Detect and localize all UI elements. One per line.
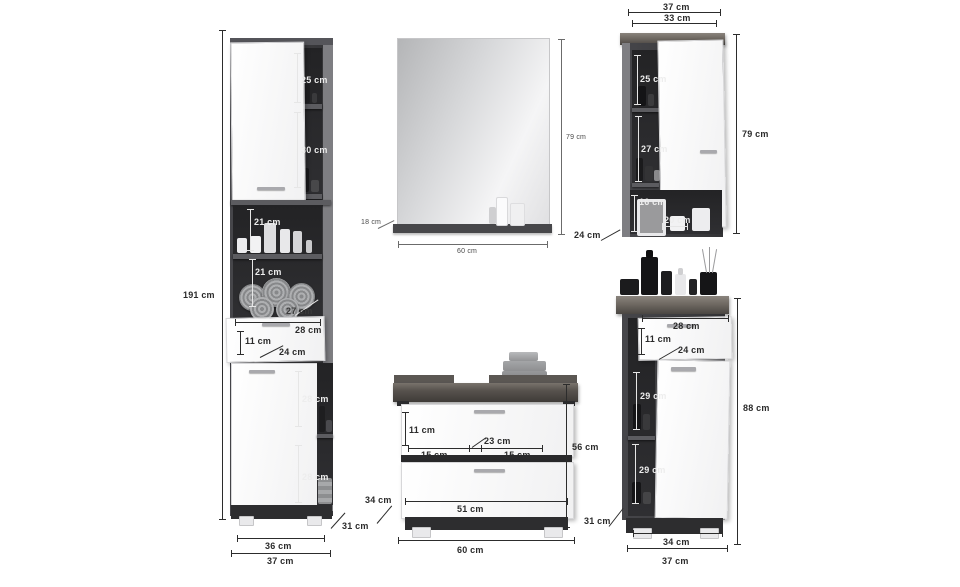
tall-foot-right	[307, 516, 322, 526]
mirror-glass	[397, 38, 550, 227]
diffuser-stick	[709, 247, 710, 273]
dim-line-wall-niche-top	[637, 55, 638, 105]
washbasin-upper-drawer-handle	[474, 410, 505, 413]
small-bottle-item	[306, 240, 312, 253]
dim-floor-width: 37 cm	[662, 557, 689, 566]
box-item	[692, 208, 710, 231]
dim-line-tall-niche-sixth	[298, 445, 299, 503]
dim-line-floor-niche-lower	[635, 444, 636, 504]
washbasin-lower-drawer-handle	[474, 469, 505, 472]
dim-tall-drawer-width: 28 cm	[295, 326, 322, 335]
bottle-item	[489, 207, 496, 224]
bottle-item	[645, 166, 653, 181]
diffuser-stick	[712, 249, 717, 273]
tall-foot-left	[239, 516, 254, 526]
dim-tall-niche-sixth: 28 cm	[302, 473, 329, 482]
dim-line-floor-inner-width	[633, 533, 723, 534]
dim-washbasin-depth: 34 cm	[365, 496, 392, 505]
dim-line-floor-drawer-height	[641, 328, 642, 355]
dim-tall-width: 37 cm	[267, 557, 294, 566]
washbasin-foot-right	[544, 527, 563, 538]
candle-item	[237, 238, 247, 253]
washbasin-top-slab	[393, 383, 578, 402]
bottle-item	[496, 197, 508, 226]
jar-item	[620, 279, 639, 295]
dim-line-tall-height	[222, 30, 223, 520]
bottle-item	[510, 203, 525, 226]
dim-tall-drawer-height: 11 cm	[245, 337, 271, 346]
dim-mirror-height: 79 cm	[566, 134, 586, 141]
spray-bottle-item	[675, 274, 686, 295]
dim-floor-inner-width: 34 cm	[663, 538, 690, 547]
dim-line-washbasin-width	[398, 540, 575, 541]
dim-line-floor-width	[627, 548, 728, 549]
dim-line-tall-inner-width	[237, 538, 325, 539]
bottle-item	[633, 404, 641, 430]
dim-wall-height: 79 cm	[742, 130, 769, 139]
dim-line-floor-niche-upper	[636, 372, 637, 430]
dim-line-tall-drawer-height	[240, 331, 241, 355]
dim-tall-niche-fourth: 21 cm	[255, 268, 282, 277]
pump-bottle-item	[641, 257, 658, 295]
mirror-shelf	[393, 224, 552, 233]
dim-washbasin-cutout-width: 23 cm	[484, 437, 511, 446]
dim-tick	[469, 445, 470, 452]
tall-shelf-board-4	[317, 434, 333, 438]
folded-towel-item	[509, 352, 538, 361]
dim-floor-drawer-depth: 24 cm	[678, 346, 705, 355]
pump-head-item	[646, 250, 653, 258]
bottle-item	[648, 94, 654, 106]
tall-upper-door-handle	[257, 187, 285, 190]
dim-line-washbasin-lower-width	[405, 501, 568, 502]
dim-line-tall-width	[231, 553, 331, 554]
dim-tall-niche-third: 21 cm	[254, 218, 281, 227]
small-bottle-item	[689, 279, 697, 295]
dim-tall-drawer-depth: 24 cm	[279, 348, 306, 357]
dim-line-wall-height	[736, 34, 737, 234]
furniture-dimension-diagram: 191 cm 25 cm 30 cm 21 cm 21 cm 27 cm 28 …	[0, 0, 960, 587]
dim-wall-niche-middle: 27 cm	[641, 145, 668, 154]
floor-cabinet-door-handle	[671, 367, 696, 371]
tube-item	[293, 231, 302, 253]
dim-line-washbasin-depth	[377, 506, 393, 524]
dim-line-washbasin-split-widths	[408, 448, 543, 449]
dim-washbasin-right-width: 15 cm	[504, 451, 531, 460]
dim-line-wall-depth	[601, 229, 621, 241]
dim-line-tall-niche-top	[297, 53, 298, 103]
dim-tall-niche-second: 30 cm	[301, 146, 328, 155]
dim-wall-niche-bottom-width: 20 cm	[664, 216, 691, 225]
dim-mirror-width: 60 cm	[457, 248, 477, 255]
dim-line-tall-niche-fourth	[252, 259, 253, 307]
dim-line-floor-height	[737, 298, 738, 545]
floor-shelf-board	[628, 436, 655, 440]
dim-line-wall-inner-width	[632, 23, 717, 24]
dim-floor-depth: 31 cm	[584, 517, 611, 526]
dim-tall-inner-width: 36 cm	[265, 542, 292, 551]
dim-tall-niche-fifth: 28 cm	[302, 395, 329, 404]
dim-line-mirror-width	[398, 244, 548, 245]
washbasin-foot-left	[412, 527, 431, 538]
floor-cabinet-door	[655, 359, 731, 519]
dim-line-mirror-height	[561, 39, 562, 235]
dim-line-washbasin-drawer-height	[405, 412, 406, 446]
dim-line-tall-niche-third	[250, 209, 251, 251]
dim-line-wall-niche-bottom-height	[634, 195, 635, 232]
wall-shelf-board-2	[632, 183, 659, 187]
dim-tall-depth: 31 cm	[342, 522, 369, 531]
dim-wall-niche-bottom-height: 16 cm	[639, 198, 666, 207]
dim-line-washbasin-height	[566, 384, 567, 528]
dim-line-tall-drawer-width	[235, 322, 321, 323]
jar-item	[326, 420, 332, 432]
tall-drawer-handle	[262, 323, 290, 326]
bottle-item	[312, 93, 317, 103]
dim-floor-niche-upper: 29 cm	[640, 392, 667, 401]
dim-wall-inner-width: 33 cm	[664, 14, 691, 23]
dim-wall-width: 37 cm	[663, 3, 690, 12]
dim-line-floor-drawer-width	[642, 318, 729, 319]
jar-item	[643, 492, 651, 504]
diffuser-item	[700, 272, 717, 295]
dim-line-wall-niche-middle	[638, 116, 639, 182]
dim-floor-niche-lower: 29 cm	[639, 466, 666, 475]
wall-cabinet-door-handle	[700, 150, 717, 153]
tall-lower-door	[231, 363, 319, 513]
dim-tick	[481, 445, 482, 452]
dim-tall-height: 191 cm	[183, 291, 215, 300]
dim-floor-height: 88 cm	[743, 404, 770, 413]
dim-washbasin-lower-width: 51 cm	[457, 505, 484, 514]
dim-washbasin-drawer-height: 11 cm	[409, 426, 435, 435]
jar-item	[311, 180, 319, 192]
dim-line-tall-niche-second	[297, 112, 298, 188]
wall-cabinet-side-panel	[622, 43, 630, 237]
dim-line-tall-niche-fifth	[298, 371, 299, 427]
dim-tall-niche-depth: 27 cm	[286, 307, 313, 316]
tall-shelf-board-3	[233, 254, 322, 259]
bottle-item	[661, 271, 672, 295]
pump-bottle-item	[264, 223, 276, 253]
spray-nozzle-item	[678, 268, 683, 275]
dim-floor-drawer-width: 28 cm	[673, 322, 700, 331]
dim-line-wall-niche-bottom-width	[662, 226, 688, 227]
dim-wall-depth: 24 cm	[574, 231, 601, 240]
dim-tall-niche-top: 25 cm	[301, 76, 328, 85]
dim-floor-drawer-height: 11 cm	[645, 335, 671, 344]
tall-upper-door	[230, 42, 306, 205]
floor-cabinet-top	[616, 296, 729, 314]
bottle-item	[632, 482, 641, 504]
dim-mirror-shelf-depth: 18 cm	[361, 219, 381, 226]
diffuser-stick	[702, 249, 707, 273]
bottle-item	[319, 406, 325, 432]
lotion-bottle-item	[280, 229, 290, 253]
bottle-item	[638, 86, 646, 106]
dim-washbasin-left-width: 15 cm	[421, 451, 448, 460]
folded-towel-item	[503, 361, 546, 371]
wall-shelf-board-1	[632, 108, 659, 112]
tall-lower-door-handle	[249, 370, 275, 373]
dim-washbasin-height: 56 cm	[572, 443, 599, 452]
bottle-item	[643, 414, 650, 430]
dim-wall-niche-top: 25 cm	[640, 75, 667, 84]
dim-washbasin-width: 60 cm	[457, 546, 484, 555]
